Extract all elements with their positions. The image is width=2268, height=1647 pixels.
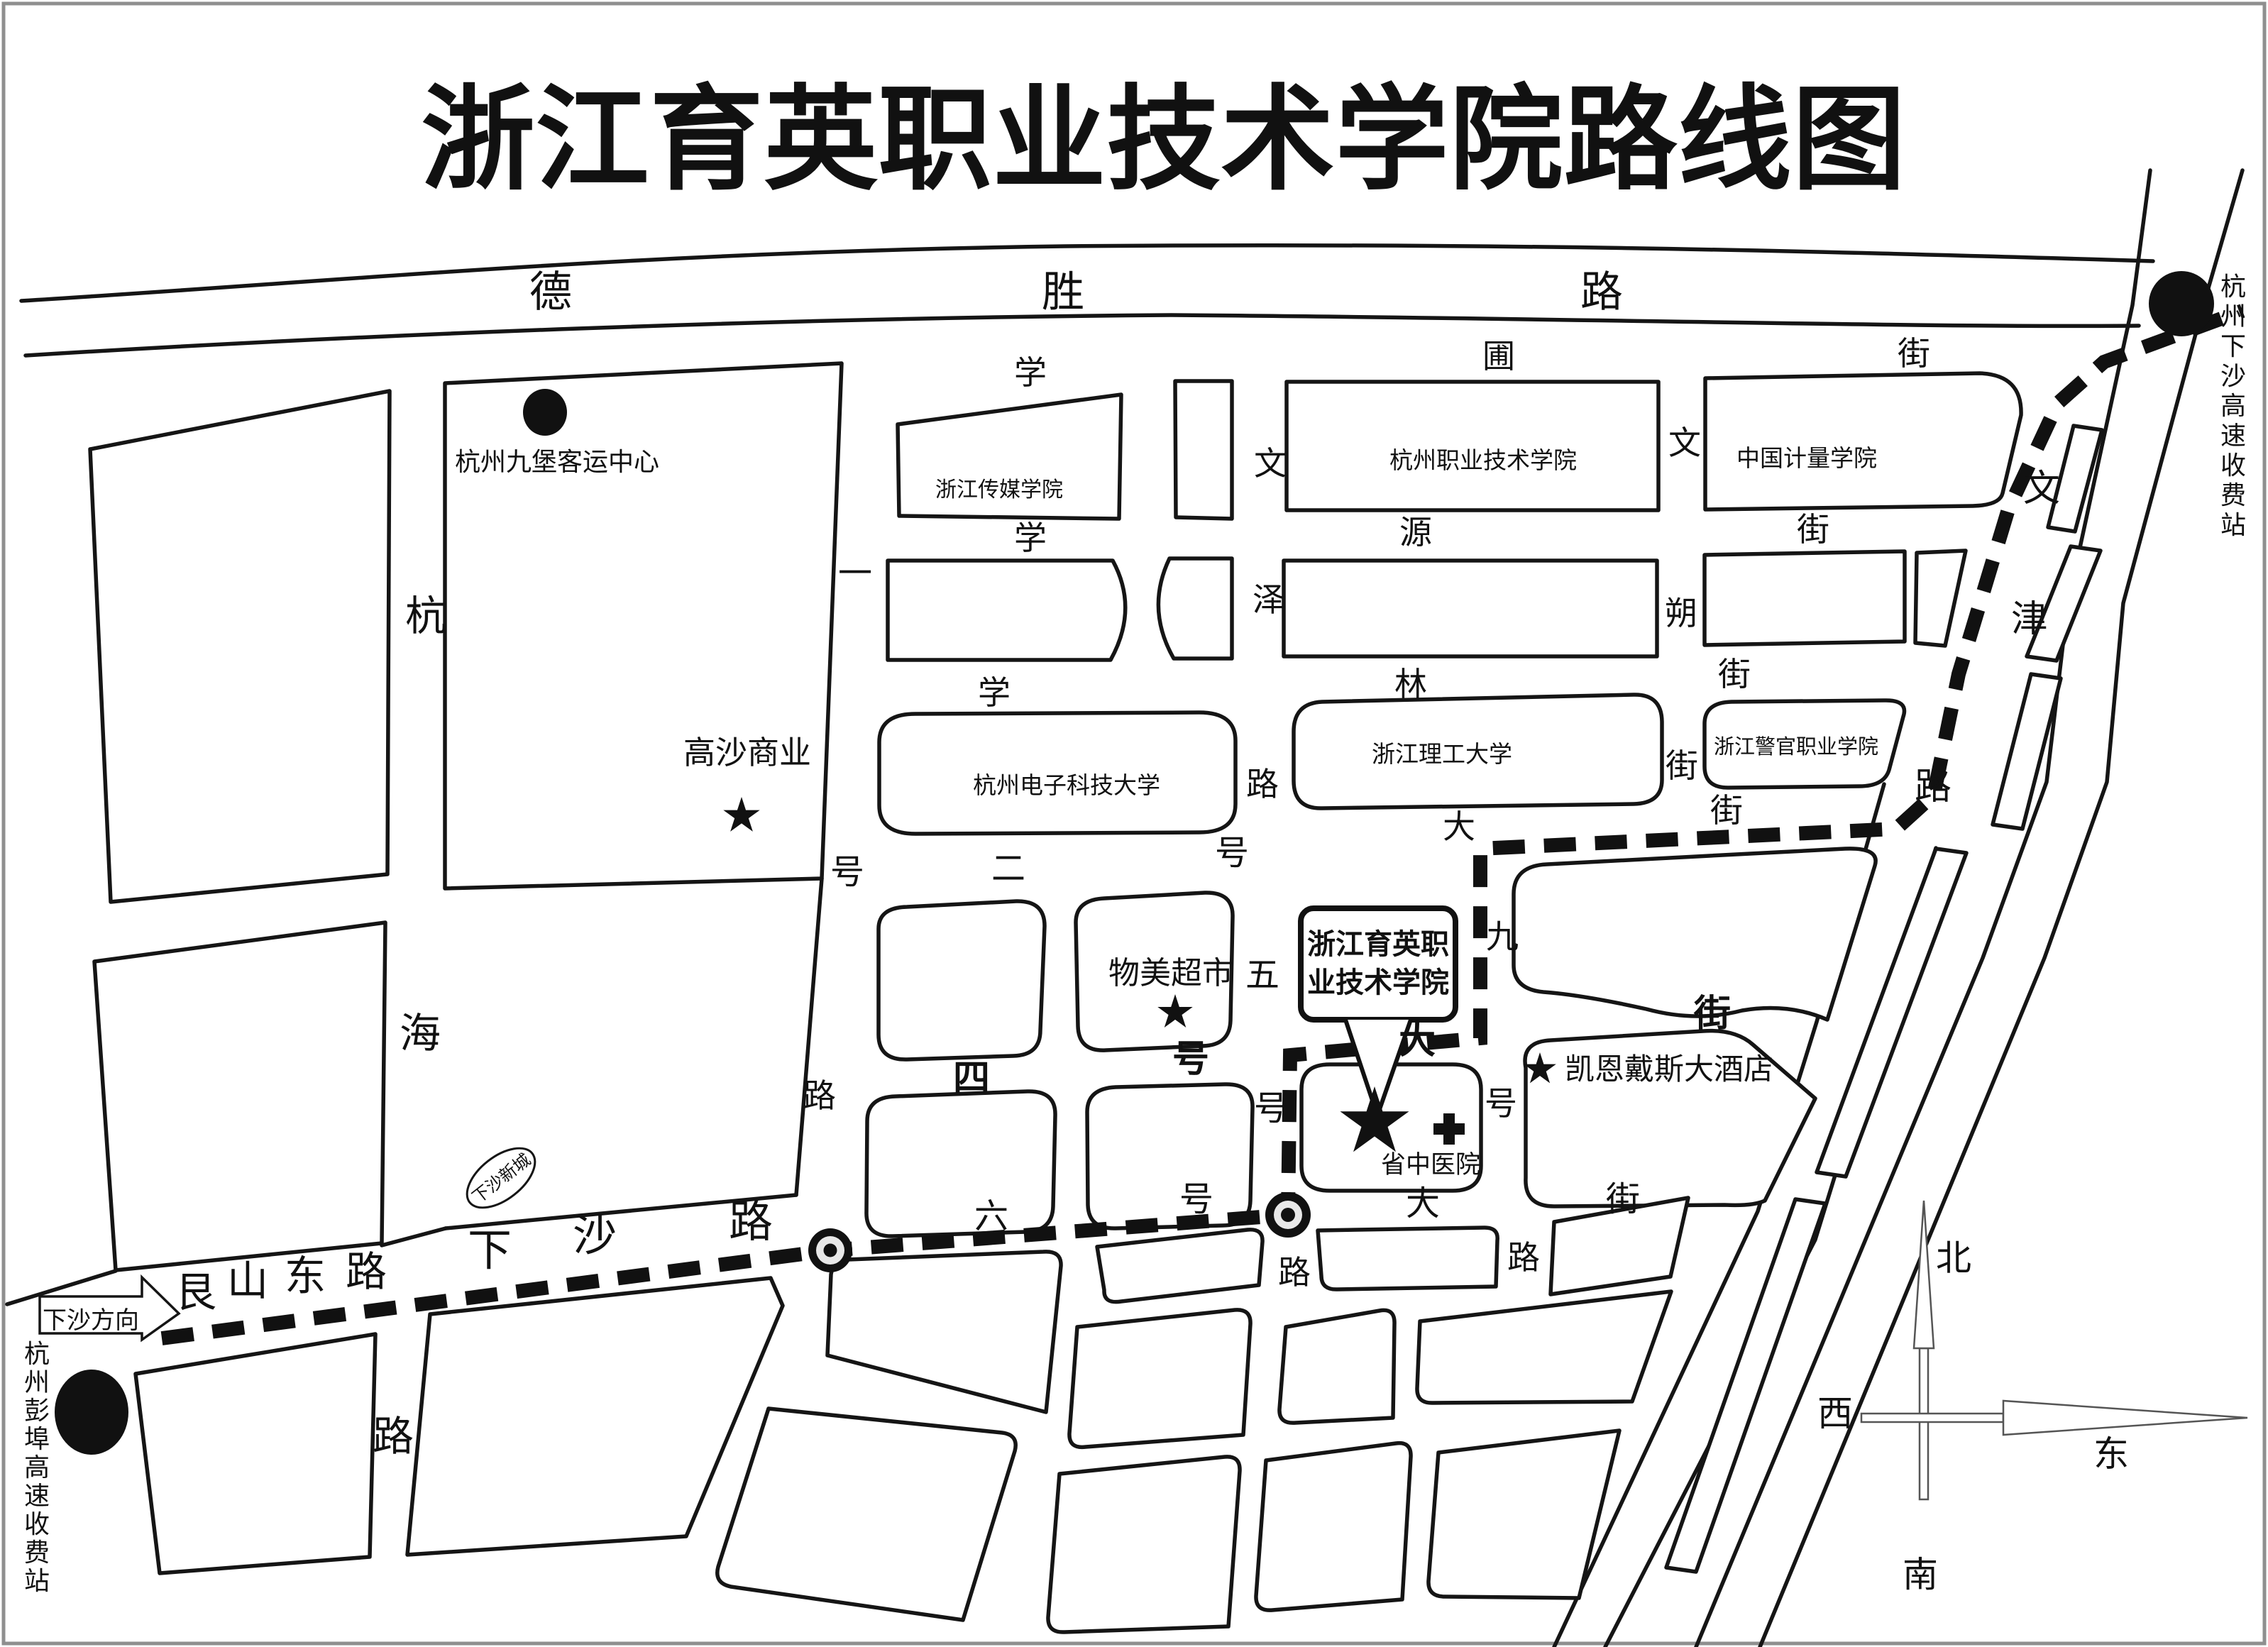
svg-text:大: 大	[1443, 808, 1475, 845]
svg-text:路: 路	[1580, 268, 1623, 316]
svg-text:九: 九	[1486, 918, 1519, 955]
svg-text:街: 街	[1693, 993, 1731, 1035]
svg-text:圃: 圃	[1482, 338, 1515, 375]
svg-text:学: 学	[1014, 519, 1047, 556]
svg-text:沙: 沙	[573, 1211, 617, 1260]
svg-text:南: 南	[1903, 1555, 1938, 1594]
svg-text:海: 海	[400, 1010, 441, 1057]
svg-text:杭州彭埠高速收费站: 杭州彭埠高速收费站	[24, 1339, 50, 1595]
svg-text:街: 街	[1718, 656, 1751, 693]
svg-text:省中医院: 省中医院	[1381, 1151, 1480, 1179]
svg-text:路: 路	[373, 1414, 414, 1460]
svg-text:杭州电子科技大学: 杭州电子科技大学	[973, 772, 1160, 798]
svg-text:艮: 艮	[175, 1269, 216, 1316]
svg-text:浙江育英职: 浙江育英职	[1307, 929, 1449, 960]
svg-text:路: 路	[1278, 1254, 1311, 1291]
svg-text:号: 号	[1485, 1085, 1517, 1122]
svg-text:山: 山	[227, 1258, 268, 1304]
svg-text:北: 北	[1936, 1238, 1971, 1278]
svg-text:浙江理工大学: 浙江理工大学	[1372, 741, 1512, 767]
svg-text:四: 四	[953, 1058, 990, 1099]
svg-text:街: 街	[1898, 335, 1930, 372]
svg-text:源: 源	[1399, 514, 1432, 551]
svg-text:杭州下沙高速收费站: 杭州下沙高速收费站	[2220, 272, 2246, 539]
svg-text:一: 一	[838, 555, 872, 593]
svg-text:大: 大	[1406, 1185, 1440, 1223]
svg-text:杭: 杭	[405, 593, 446, 639]
svg-text:津: 津	[2011, 599, 2048, 640]
svg-text:五: 五	[1245, 957, 1279, 994]
svg-text:六: 六	[974, 1198, 1008, 1235]
svg-text:文: 文	[1668, 424, 1701, 461]
svg-text:下沙方向: 下沙方向	[43, 1307, 139, 1334]
svg-text:中国计量学院: 中国计量学院	[1736, 445, 1877, 471]
svg-text:二: 二	[991, 850, 1025, 888]
svg-text:路: 路	[1246, 766, 1279, 803]
svg-text:泽: 泽	[1253, 581, 1285, 618]
svg-text:高沙商业: 高沙商业	[683, 734, 811, 771]
svg-text:物美超市: 物美超市	[1108, 956, 1233, 991]
svg-text:德: 德	[529, 268, 572, 316]
svg-text:街: 街	[1797, 511, 1829, 548]
svg-text:业技术学院: 业技术学院	[1307, 967, 1449, 998]
svg-text:凯恩戴斯大酒店: 凯恩戴斯大酒店	[1565, 1052, 1773, 1086]
svg-text:下: 下	[468, 1226, 512, 1275]
svg-text:路: 路	[1507, 1239, 1540, 1276]
svg-text:路: 路	[729, 1198, 773, 1247]
svg-text:街: 街	[1666, 747, 1698, 784]
svg-text:东: 东	[285, 1253, 326, 1299]
svg-text:号: 号	[1254, 1090, 1288, 1128]
svg-text:路: 路	[803, 1077, 836, 1114]
svg-text:文: 文	[2023, 468, 2060, 509]
svg-text:浙江育英职业技术学院路线图: 浙江育英职业技术学院路线图	[421, 76, 1906, 203]
svg-text:号: 号	[1172, 1039, 1209, 1080]
svg-text:浙江警官职业学院: 浙江警官职业学院	[1714, 735, 1878, 759]
svg-text:街: 街	[1606, 1181, 1640, 1218]
svg-text:号: 号	[830, 854, 864, 891]
svg-text:杭州职业技术学院: 杭州职业技术学院	[1389, 447, 1577, 473]
svg-text:东: 东	[2093, 1434, 2129, 1474]
svg-text:路: 路	[1915, 766, 1952, 808]
svg-text:号: 号	[1215, 834, 1249, 872]
svg-text:号: 号	[1179, 1181, 1213, 1218]
svg-text:学: 学	[978, 674, 1011, 711]
svg-text:大: 大	[1399, 1020, 1436, 1062]
svg-text:路: 路	[346, 1249, 387, 1295]
svg-text:朔: 朔	[1665, 595, 1697, 632]
svg-text:浙江传媒学院: 浙江传媒学院	[935, 478, 1063, 502]
svg-text:西: 西	[1817, 1394, 1853, 1433]
svg-text:林: 林	[1394, 666, 1427, 703]
svg-text:文: 文	[1254, 445, 1287, 482]
svg-text:学: 学	[1014, 354, 1047, 391]
svg-text:胜: 胜	[1042, 268, 1084, 316]
svg-text:街: 街	[1710, 792, 1743, 829]
svg-text:杭州九堡客运中心: 杭州九堡客运中心	[455, 447, 659, 476]
